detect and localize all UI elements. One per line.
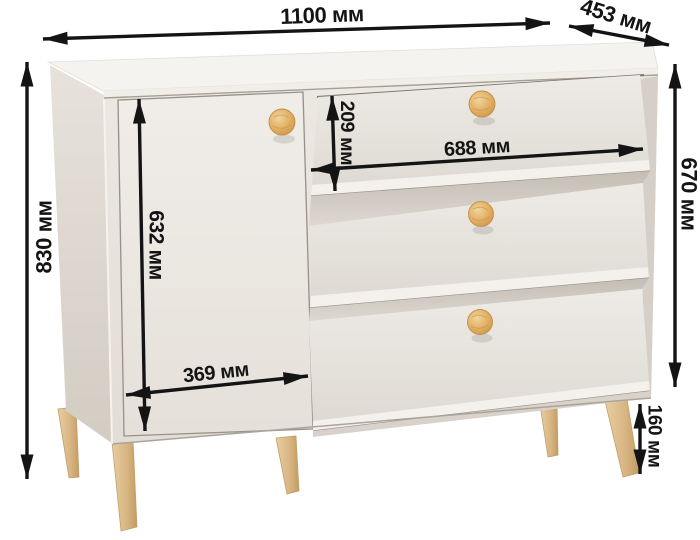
dim-label-209: 209 мм [336,101,358,165]
dim-label-632: 632 мм [145,210,168,280]
dim-label-1100: 1100 мм [280,1,364,29]
dim-label-453: 453 мм [577,0,654,39]
drawer-2-knob-shadow [473,226,494,235]
dim-label-830: 830 мм [32,201,57,274]
drawer-2-knob-face [469,202,494,227]
drawer-1-knob-shadow [473,117,495,126]
dimension-body-height: 670 мм [675,64,700,387]
dimension-overall-width: 1100 мм [43,1,550,39]
leg-front-right [605,399,639,477]
drawer-3-knob-shadow [472,334,493,343]
leg-middle [276,436,299,494]
dim-label-688: 688 мм [443,135,510,161]
leg-back-right [540,403,558,457]
dimension-depth: 453 мм [569,0,669,45]
dimension-leg-height: 160 мм [640,404,665,474]
dim-label-160: 160 мм [644,405,665,468]
furniture-dimension-diagram: 1100 мм 453 мм 830 мм 670 мм 632 мм 209 … [0,0,700,540]
door-knob-face [269,109,295,135]
drawer-3-knob-face [468,310,493,335]
door-knob-shadow [273,135,295,144]
drawer-1-knob-face [469,91,495,117]
dim-label-670: 670 мм [677,158,700,231]
leg-front-left [112,440,137,531]
dimension-overall-height: 830 мм [27,62,57,479]
commode-diagram-canvas: 1100 мм 453 мм 830 мм 670 мм 632 мм 209 … [0,0,700,540]
